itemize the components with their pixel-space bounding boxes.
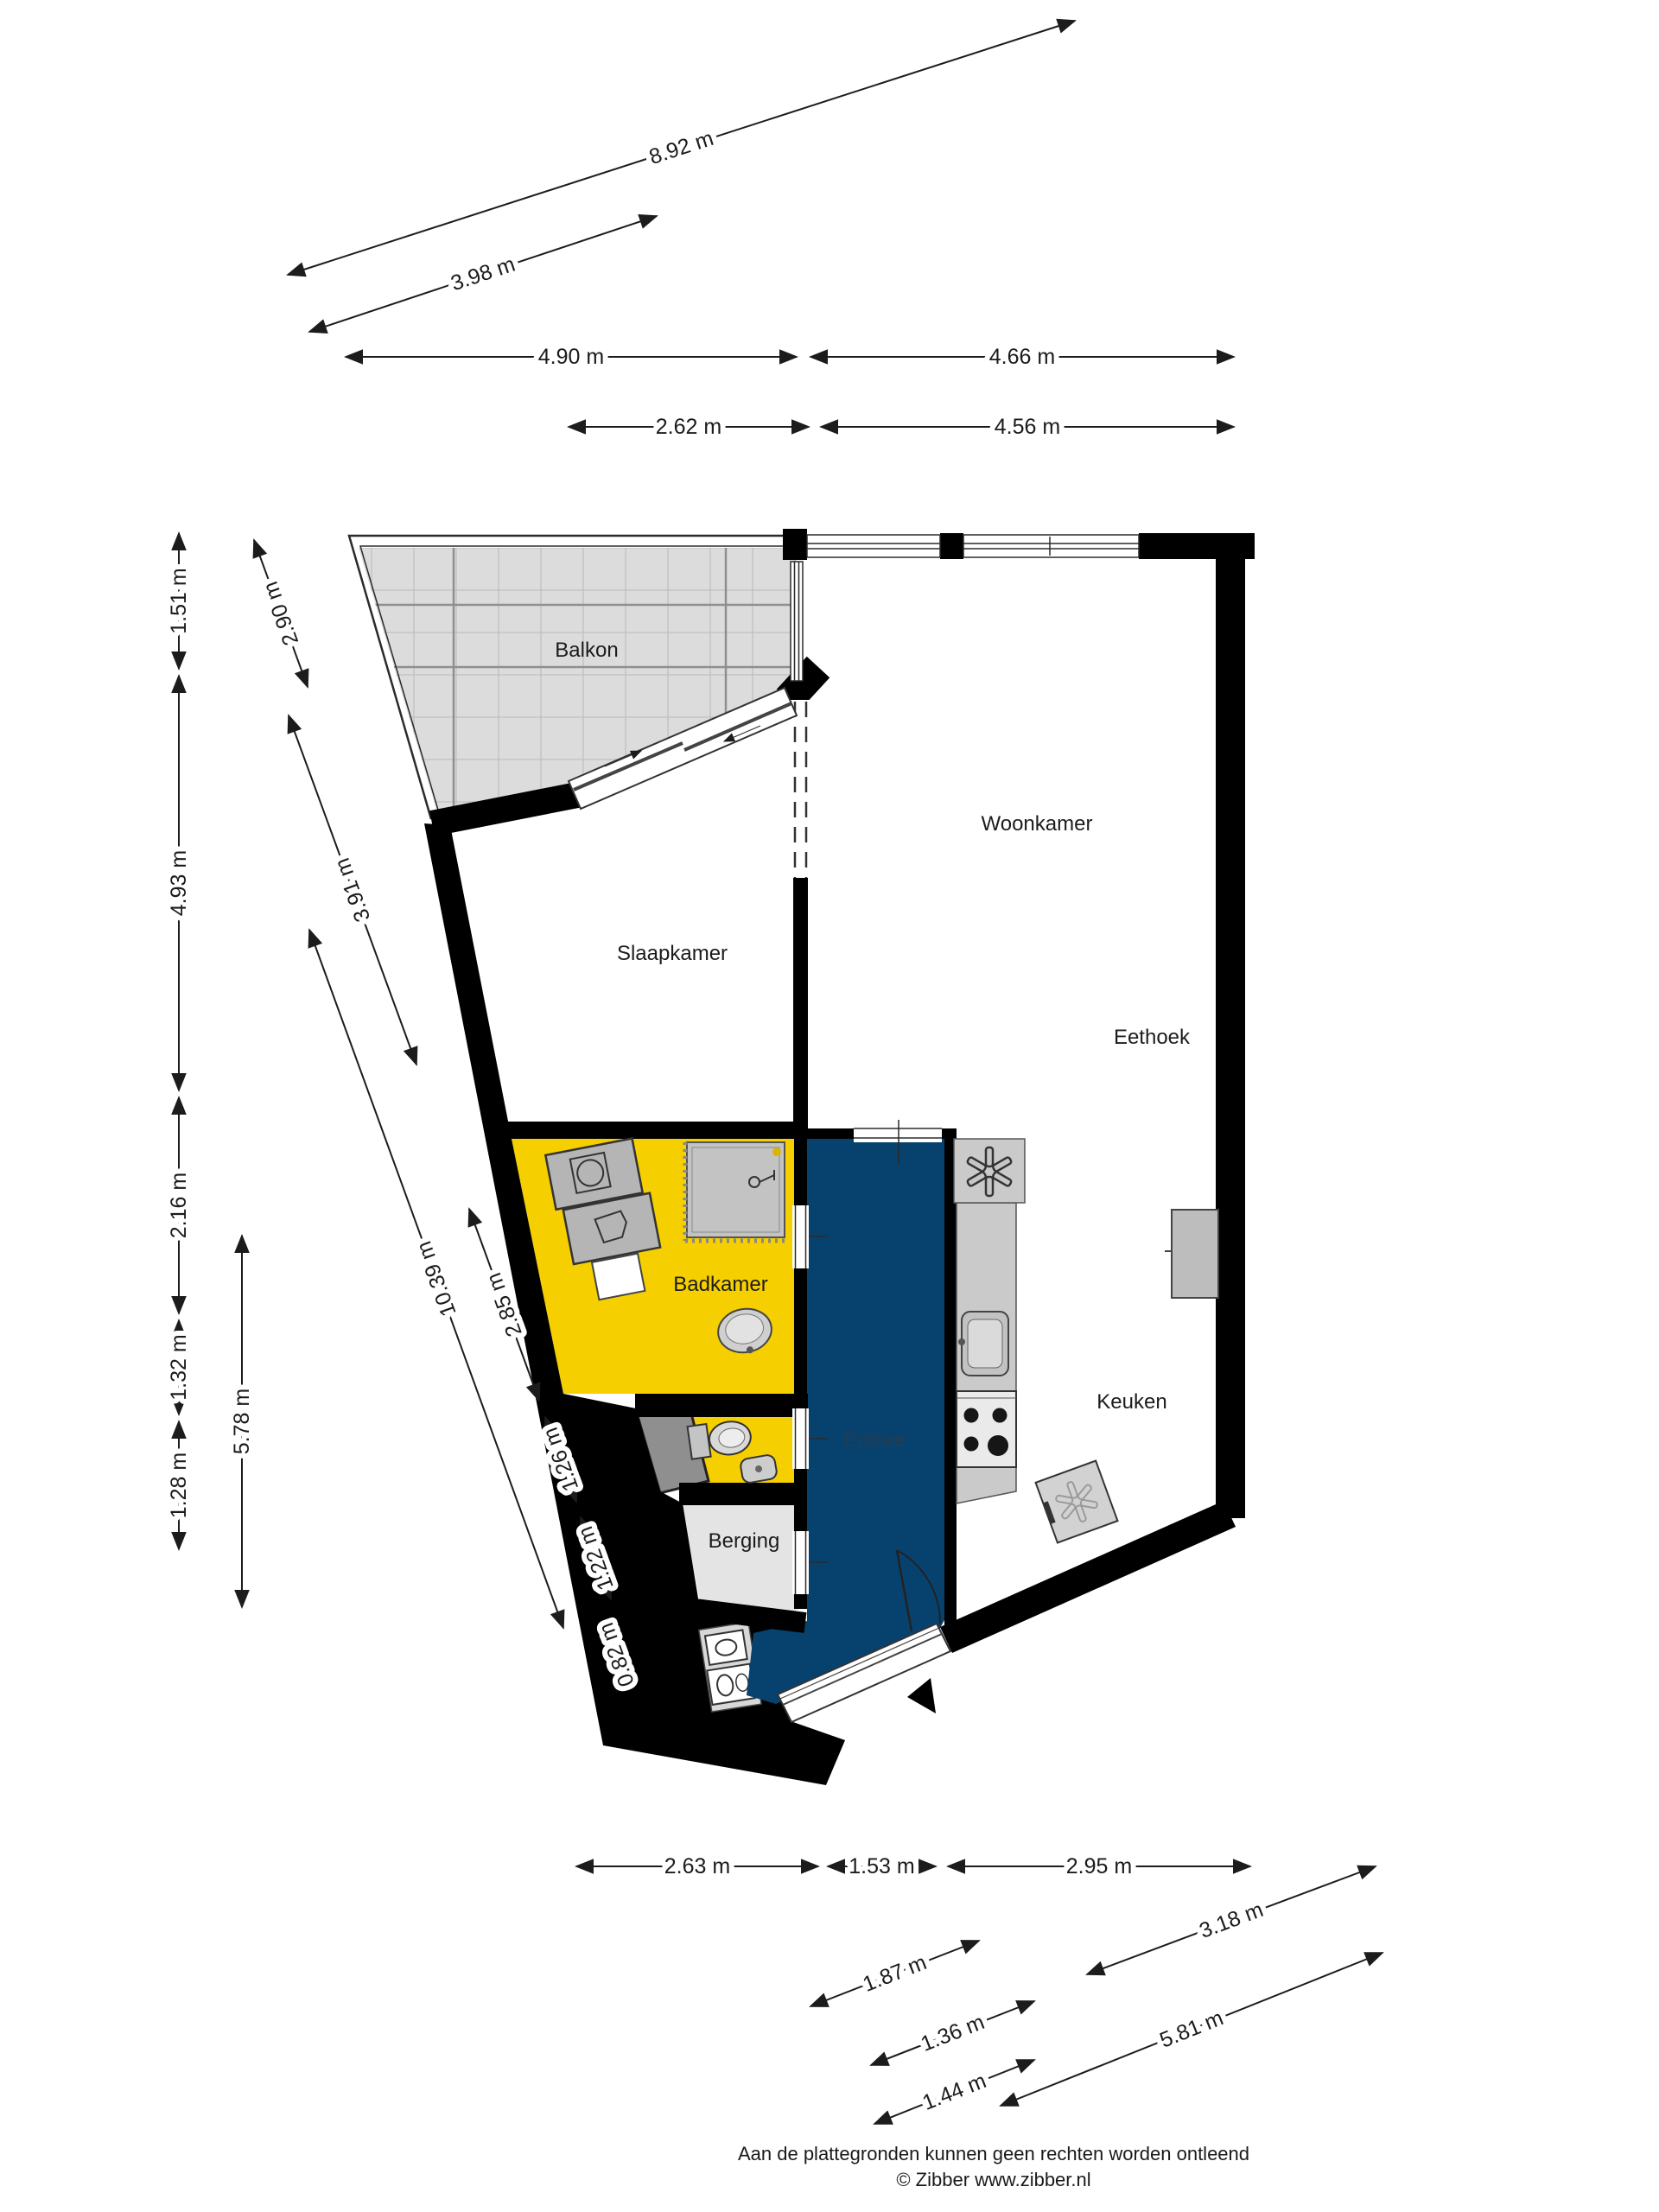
wall-slaapkamer-badkamer xyxy=(506,1122,808,1139)
dimension: 4.56 m xyxy=(821,415,1234,439)
dimension: 4.90 m xyxy=(346,345,797,369)
dimension-label: 1.53 m xyxy=(849,1854,914,1878)
dimension-label: 10.39 m xyxy=(411,1238,461,1319)
dimension-label: 1.51 m xyxy=(167,568,191,633)
dimension-label: 3.98 m xyxy=(448,252,518,296)
label-balkon: Balkon xyxy=(555,639,618,662)
dimension: 3.98 m xyxy=(309,216,657,332)
dimension: 3.91 m xyxy=(289,715,416,1065)
wall-slaapkamer-woonkamer xyxy=(793,878,808,1134)
dimension-label: 5.81 m xyxy=(1156,2005,1226,2052)
dimension-label: 1.36 m xyxy=(918,2010,988,2056)
dimension-label: 4.90 m xyxy=(538,345,604,369)
dimension-lines: 8.92 m3.98 m4.90 m4.66 m2.62 m4.56 m1.51… xyxy=(167,21,1382,2124)
dimension: 1.51 m xyxy=(167,533,191,669)
footer-disclaimer: Aan de plattegronden kunnen geen rechten… xyxy=(605,2141,1382,2167)
shower xyxy=(685,1142,786,1241)
burner-icon xyxy=(993,1408,1007,1423)
dimension: 1.36 m xyxy=(871,2001,1034,2065)
dimension: 1.28 m xyxy=(167,1421,191,1549)
label-eethoek: Eethoek xyxy=(1114,1026,1191,1049)
label-entree: Entree xyxy=(844,1428,906,1452)
wall-post-top xyxy=(940,533,963,559)
dimension: 5.81 m xyxy=(1001,1953,1382,2106)
radiator xyxy=(1165,1210,1218,1298)
wall-post-balcony xyxy=(783,529,807,560)
dimension: 1.32 m xyxy=(167,1320,191,1414)
dimension-label: 2.62 m xyxy=(656,415,721,439)
dimension-label: 3.18 m xyxy=(1196,1897,1266,1943)
wall-entree-keuken xyxy=(944,1139,957,1631)
window-balcony-right xyxy=(791,562,803,681)
wall-wc-berging xyxy=(679,1483,807,1505)
dimension-label: 2.90 m xyxy=(258,578,303,648)
label-woonkamer: Woonkamer xyxy=(982,812,1093,836)
label-keuken: Keuken xyxy=(1096,1390,1166,1414)
wall-badkamer-wc xyxy=(635,1394,808,1417)
dimension: 1.44 m xyxy=(874,2060,1034,2124)
wall-right xyxy=(1216,533,1245,1518)
dimension: 2.90 m xyxy=(254,540,308,687)
dimension: 8.92 m xyxy=(288,21,1075,275)
dimension: 2.16 m xyxy=(167,1097,191,1313)
intercom-box-icon xyxy=(705,1630,747,1664)
dimension: 3.18 m xyxy=(1087,1866,1376,1974)
burner-icon xyxy=(988,1435,1008,1456)
page-footer: Aan de plattegronden kunnen geen rechten… xyxy=(605,2141,1382,2193)
window-top-1 xyxy=(807,535,940,557)
dimension-label: 8.92 m xyxy=(646,126,716,169)
dimension-label: 2.95 m xyxy=(1066,1854,1132,1878)
dimension: 1.87 m xyxy=(810,1941,979,2006)
dimension-label: 1.44 m xyxy=(919,2069,989,2115)
dimension: 4.93 m xyxy=(167,676,191,1090)
label-berging: Berging xyxy=(709,1529,780,1553)
footer-copyright: © Zibber www.zibber.nl xyxy=(605,2167,1382,2193)
faucet-icon xyxy=(958,1338,965,1345)
dimension: 2.63 m xyxy=(576,1854,818,1878)
label-badkamer: Badkamer xyxy=(673,1273,767,1296)
dimension-label: 1.32 m xyxy=(167,1334,191,1400)
dimension-label: 1.28 m xyxy=(167,1452,191,1518)
dimension: 1.53 m xyxy=(828,1854,936,1878)
dimension-label: 4.93 m xyxy=(167,850,191,916)
dimension: 4.66 m xyxy=(810,345,1234,369)
burner-icon xyxy=(964,1437,979,1452)
dimension-label: 5.78 m xyxy=(230,1389,254,1454)
window-top-2 xyxy=(963,535,1139,557)
opening-slaapkamer-woonkamer xyxy=(790,700,811,878)
shelf xyxy=(592,1254,645,1300)
floor-plan: Balkon Woonkamer Slaapkamer Eethoek Badk… xyxy=(0,0,1659,2212)
mechanical-ventilation-unit xyxy=(1036,1461,1118,1543)
dimension: 5.78 m xyxy=(230,1236,254,1607)
burner-icon xyxy=(964,1408,979,1423)
entrance-marker-icon xyxy=(907,1678,936,1713)
toilet-tank xyxy=(688,1424,711,1459)
stove xyxy=(957,1391,1016,1467)
dimension-label: 2.63 m xyxy=(664,1854,730,1878)
wc-hand-basin xyxy=(740,1454,778,1484)
drain-icon xyxy=(772,1147,781,1156)
dimension: 2.62 m xyxy=(569,415,809,439)
dimension-label: 3.91 m xyxy=(330,855,375,925)
dimension-label: 1.87 m xyxy=(860,1950,930,1997)
kitchen-sink xyxy=(958,1312,1008,1376)
floor-plan-page: Balkon Woonkamer Slaapkamer Eethoek Badk… xyxy=(0,0,1659,2212)
dimension: 2.95 m xyxy=(948,1854,1250,1878)
dimension-label: 4.56 m xyxy=(995,415,1060,439)
label-slaapkamer: Slaapkamer xyxy=(617,942,728,965)
dimension-label: 2.16 m xyxy=(167,1173,191,1238)
dimension-label: 4.66 m xyxy=(989,345,1055,369)
